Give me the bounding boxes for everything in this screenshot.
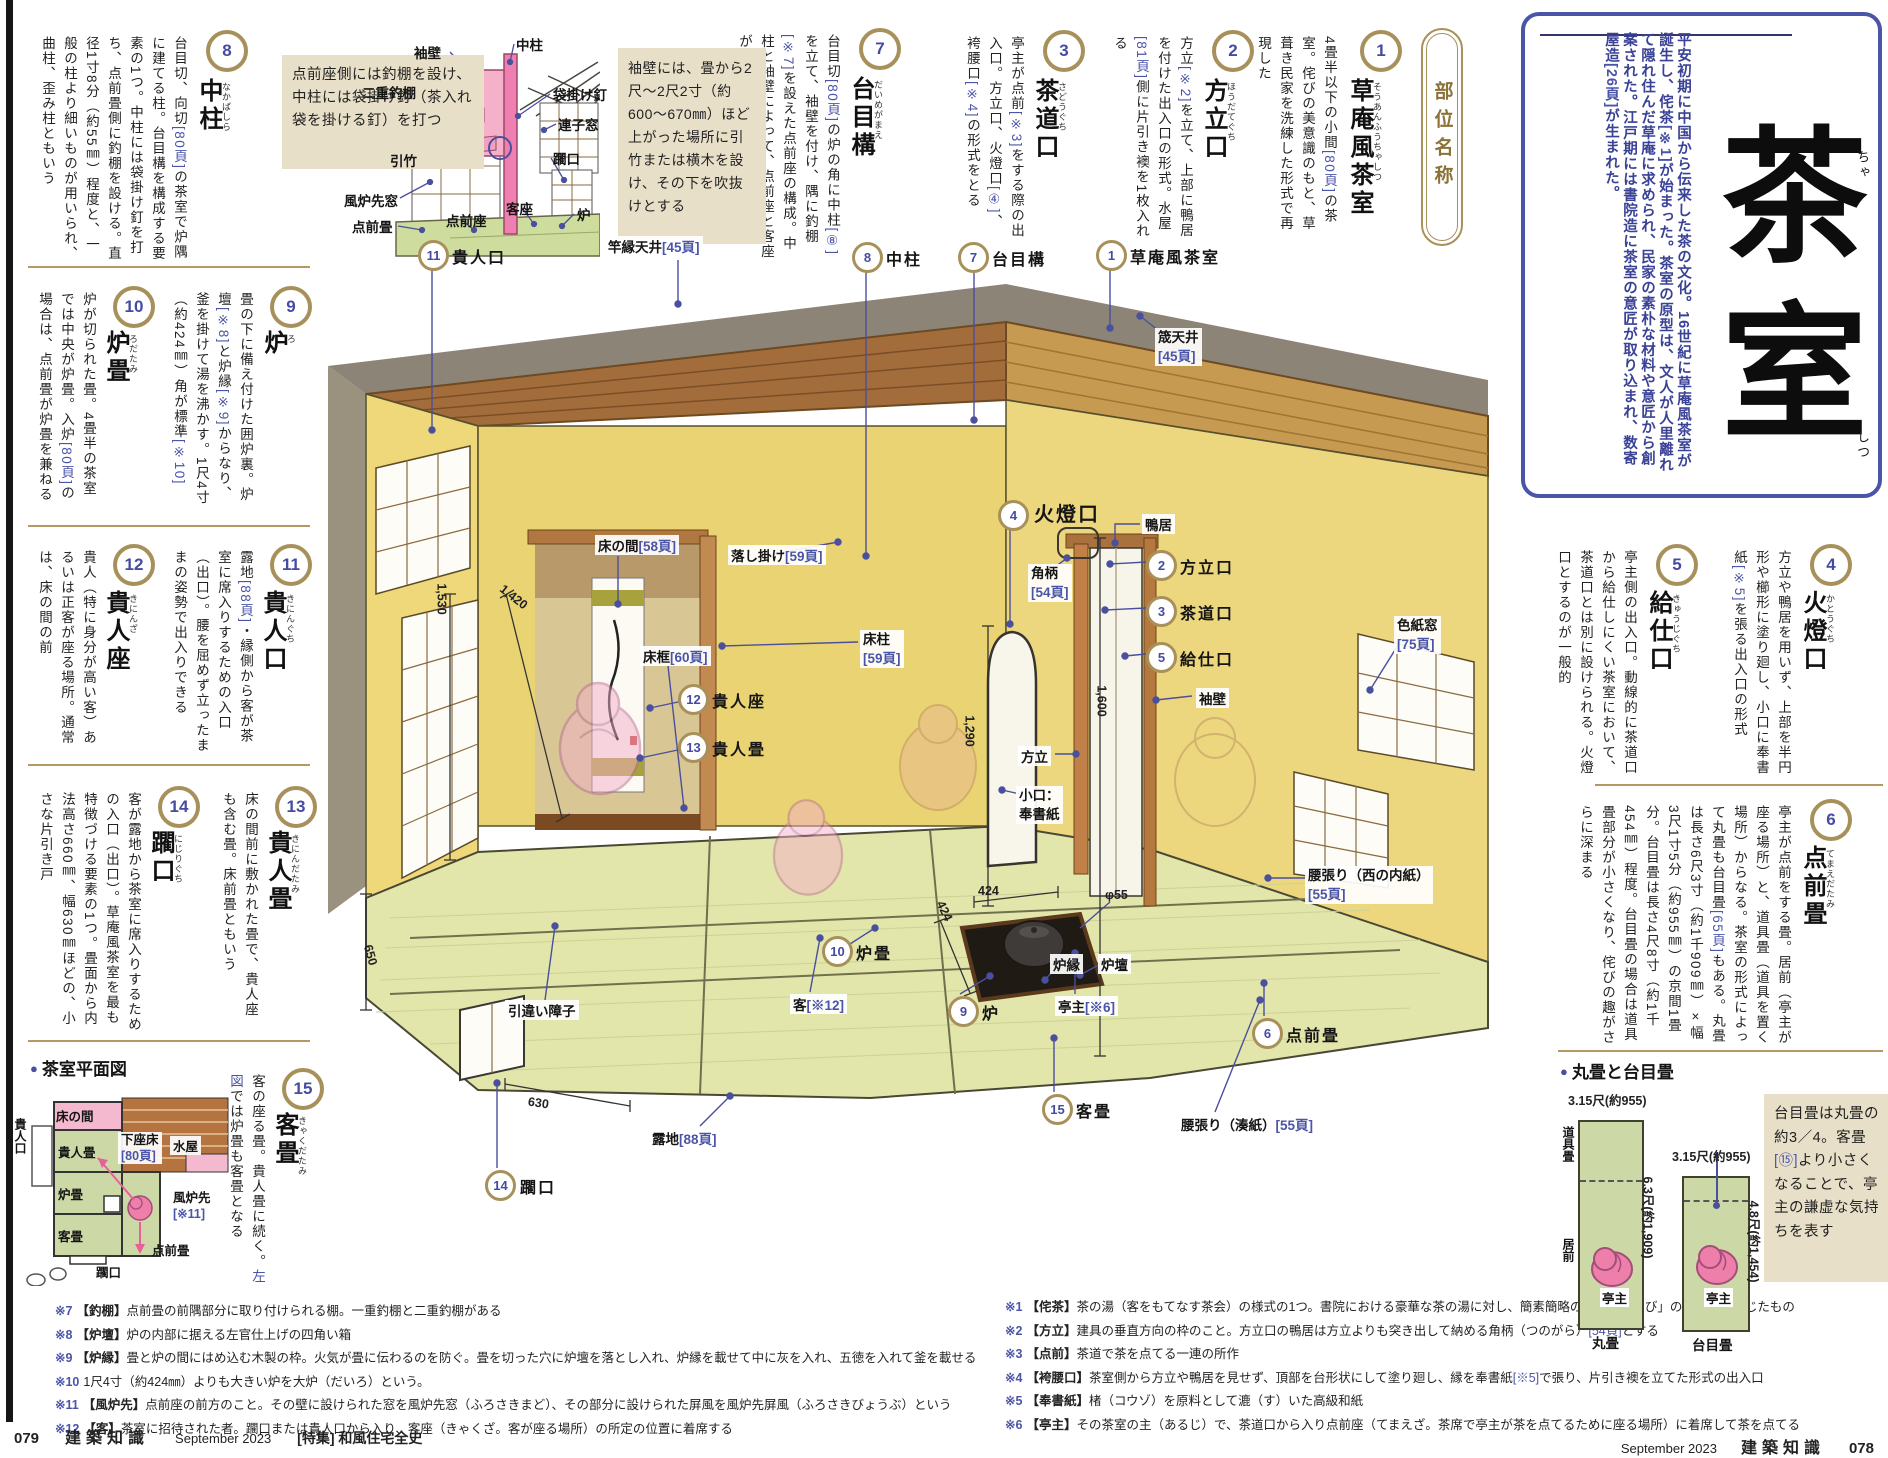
- item-6-kana: てまえだたみ: [1824, 849, 1837, 909]
- mini-label-furosaki-mado: 風炉先窓: [344, 190, 398, 210]
- diagram-label-koshibari-nishi: 腰張り（西の内紙）[55頁]: [1305, 866, 1433, 904]
- item-3-number: 3: [1043, 30, 1085, 72]
- diagram-label-koshibari-minato: 腰張り（湊紙）[55頁]: [1178, 1114, 1316, 1134]
- mini-label-ro: 炉: [577, 204, 591, 224]
- item-9-number: 9: [270, 286, 312, 328]
- diagram-label-kyaku: 客[※12]: [790, 994, 847, 1014]
- diagram-label-koguchi: 小口：奉書紙: [1016, 786, 1063, 824]
- item-7-kana: だいめがまえ: [872, 80, 885, 140]
- issue-date-right: September 2023: [1621, 1441, 1717, 1456]
- tatami-dim-w2: 3.15尺(約955): [1672, 1146, 1751, 1165]
- page-title: 茶室: [1708, 120, 1854, 472]
- divider: [1558, 1050, 1883, 1052]
- diagram-label-sodekabe: 袖壁: [1196, 688, 1229, 708]
- diagram-label-nijiriguchi: 躙口: [520, 1174, 556, 1198]
- mini-label-fukurokake-kugi: 袋掛け釘: [553, 84, 607, 104]
- diagram-label-teishu: 亭主[※6]: [1055, 996, 1118, 1016]
- diagram-circle-13: 13: [678, 732, 709, 763]
- item-6-number: 6: [1810, 799, 1852, 841]
- tatami-title: ●丸畳と台目畳: [1560, 1058, 1674, 1083]
- diagram-circle-2: 2: [1146, 550, 1177, 581]
- item-15-kana: きゃくだたみ: [296, 1116, 309, 1176]
- diagram-circle-15: 15: [1042, 1094, 1073, 1125]
- diagram-label-saobuchi-tenjo: 竿縁天井[45頁]: [605, 236, 703, 256]
- item-6-body: 亭主が点前をする畳。居前（亭主が座る場所）と、道具畳（道具を置く場所）からなる。…: [1574, 805, 1794, 1045]
- diagram-label-tsunogara: 角柄[54頁]: [1028, 564, 1072, 602]
- host-figure: [128, 1196, 152, 1220]
- diagram-label-otoshigake: 落し掛け[59頁]: [728, 545, 826, 565]
- item-4-number: 4: [1810, 544, 1852, 586]
- tatami-dim-h2: 4.8尺(約1,454): [1745, 1201, 1764, 1283]
- page-title-kana-2: しつ: [1853, 430, 1872, 460]
- item-8-kana: なかばしら: [220, 82, 233, 132]
- diagram-circle-3: 3: [1146, 596, 1177, 627]
- plan-label-rodatami: 炉畳: [58, 1184, 83, 1203]
- item-7-number: 7: [859, 28, 901, 70]
- item-9-kana: ろ: [285, 334, 298, 344]
- divider: [1595, 784, 1883, 786]
- divider: [28, 1040, 310, 1042]
- item-13-kana: きにんだたみ: [289, 834, 302, 894]
- item-3-body: 亭主が点前[※3]をする際の出入口。方立口、火燈口[④]、袴腰口[※4]の形式を…: [961, 36, 1027, 240]
- plan-label-nijiriguchi: 躙口: [96, 1262, 121, 1281]
- badge-outline: 部位名称: [1421, 28, 1463, 246]
- feature-title: [特集] 和風住宅全史: [297, 1428, 422, 1448]
- magazine-name-right: 建築知識: [1741, 1434, 1825, 1458]
- diagram-label-soanfu: 草庵風茶室: [1130, 244, 1220, 268]
- diagram-circle-14: 14: [485, 1170, 516, 1201]
- mini-label-nakabashira: 中柱: [516, 34, 543, 54]
- footer-left: 079 建築知識 September 2023 [特集] 和風住宅全史: [14, 1424, 422, 1448]
- diagram-label-kininza: 貴人座: [712, 688, 766, 712]
- plan-label-temaedatami: 点前畳: [152, 1240, 190, 1259]
- item-12-number: 12: [113, 544, 155, 586]
- diagram-circle-8: 8: [852, 242, 883, 273]
- diagram-circle-9: 9: [948, 996, 979, 1027]
- dim-424a: 424: [978, 884, 999, 898]
- tatami-dim-w1: 3.15尺(約955): [1568, 1090, 1647, 1109]
- floor-plan-title: ●茶室平面図: [30, 1055, 127, 1080]
- diagram-label-kinindatami: 貴人畳: [712, 736, 766, 760]
- page-number-left: 079: [14, 1430, 39, 1447]
- diagram-label-hodate: 方立: [1018, 746, 1051, 766]
- dim-1290: 1,290: [963, 715, 977, 746]
- footnotes-left: ※7【釣棚】点前畳の前隅部分に取り付けられる棚。一重釣棚と二重釣棚がある ※8【…: [55, 1300, 1015, 1441]
- plan-label-kinindatami: 貴人畳: [58, 1142, 96, 1161]
- diagram-label-nakabashira: 中柱: [886, 246, 922, 270]
- item-4-body: 方立や鴨居を用いず、上部を半円形や櫛形に塗り廻し、小口に奉書紙[※5]を張る出入…: [1728, 550, 1794, 776]
- item-1-body: 4畳半以下の小間[80頁]の茶室。侘びの美意識のもと、草葺き民家を洗練した形式で…: [1252, 36, 1340, 240]
- mini-label-sodekabe: 袖壁: [414, 42, 441, 62]
- diagram-label-kyakudatami: 客畳: [1076, 1098, 1112, 1122]
- dim-1530: 1,530: [435, 583, 449, 614]
- item-1-number: 1: [1360, 30, 1402, 72]
- diagram-label-daimegamae: 台目構: [992, 246, 1046, 270]
- item-12-kana: きにんざ: [127, 594, 140, 634]
- plan-label-furosaki: 風炉先[※11]: [170, 1190, 214, 1222]
- item-5-body: 亭主側の出入口。動線的に茶道口から給仕しにくい茶室において、茶道口とは別に設けら…: [1552, 550, 1640, 776]
- note-sodekabe: 袖壁には、畳から2尺〜2尺2寸（約600〜670㎜）ほど上がった場所に引竹または…: [618, 48, 766, 244]
- diagram-label-hikichigai: 引違い障子: [505, 1000, 579, 1020]
- divider: [28, 525, 310, 527]
- item-10-kana: ろだたみ: [127, 334, 140, 374]
- item-3-kana: さどうぐち: [1056, 82, 1069, 132]
- main-diagram: [310, 238, 1500, 1198]
- diagram-label-katoguchi: 火燈口: [1034, 498, 1100, 527]
- item-14-kana: にじりぐち: [172, 834, 185, 884]
- diagram-label-rodatami: 炉畳: [856, 940, 892, 964]
- tatami-label-teishu2: 亭主: [1704, 1288, 1733, 1307]
- diagram-label-kamoi: 鴨居: [1142, 514, 1175, 534]
- divider: [28, 266, 310, 268]
- page-title-kana-1: ちゃ: [1853, 150, 1872, 180]
- item-8-body: 台目切、向切[80頁]の茶室で炉隅に建てる柱。台目構を構成する要素の1つ。中柱に…: [36, 36, 190, 264]
- footnotes-right: ※1【侘茶】茶の湯（客をもてなす茶会）の様式の1つ。書院における豪華な茶の湯に対…: [1005, 1296, 1885, 1437]
- diagram-circle-10: 10: [822, 936, 853, 967]
- note-daime: 台目畳は丸畳の約3／4。客畳[⑮]より小さくなることで、亭主の謙虚な気持ちを表す: [1764, 1094, 1888, 1282]
- diagram-label-sadoguchi: 茶道口: [1180, 600, 1234, 624]
- diagram-label-osa-tenjo: 筬天井[45頁]: [1155, 328, 1202, 366]
- tatami-label-dougu: 道具畳: [1560, 1126, 1577, 1162]
- mini-label-kyakuza: 客座: [506, 198, 533, 218]
- diagram-circle-1: 1: [1096, 240, 1127, 271]
- item-2-kana: ほうだてぐち: [1225, 82, 1238, 142]
- item-2-number: 2: [1212, 30, 1254, 72]
- tatami-label-teishu1: 亭主: [1600, 1288, 1629, 1307]
- dim-1600: 1,600: [1095, 685, 1109, 716]
- page-number-right: 078: [1849, 1440, 1874, 1457]
- item-5-kana: きゅうじぐち: [1670, 594, 1683, 654]
- diagram-label-kyujiguchi: 給仕口: [1180, 646, 1234, 670]
- magazine-name-left: 建築知識: [65, 1424, 149, 1448]
- item-4-kana: かとうぐち: [1824, 594, 1837, 644]
- item-15-number: 15: [282, 1068, 324, 1110]
- diagram-label-tokobashira: 床柱[59頁]: [860, 630, 904, 668]
- diagram-label-roji: 露地[88頁]: [652, 1128, 717, 1148]
- item-5-number: 5: [1656, 544, 1698, 586]
- diagram-circle-7: 7: [958, 242, 989, 273]
- tatami-caption-maru: 丸畳: [1592, 1332, 1619, 1352]
- item-11-kana: きにんぐち: [284, 594, 297, 644]
- divider: [28, 764, 310, 766]
- item-14-body: 客が露地から茶室に席入りするための入口（出口）。草庵風茶室を最も特徴づける要素の…: [34, 792, 144, 1032]
- mini-label-nijyu-tsuridana: 二重釣棚: [362, 82, 416, 102]
- tatami-caption-daime: 台目畳: [1692, 1334, 1733, 1354]
- intro-text: 平安初期に中国から伝来した茶の文化。16世紀に草庵風茶室が誕生し、侘茶[※1]が…: [1602, 32, 1692, 478]
- item-11-number: 11: [270, 544, 312, 586]
- item-13-number: 13: [275, 786, 317, 828]
- diagram-label-hodateguchi: 方立口: [1180, 554, 1234, 578]
- diagram-label-tokonoma: 床の間[58頁]: [595, 535, 679, 555]
- item-2-body: 方立[※2]を立て、上部に鴨居を付けた出入口の形式。水屋[81頁]側に片引き襖を…: [1108, 36, 1196, 240]
- badge-label: 部位名称: [1429, 81, 1456, 193]
- diagram-label-kinin-guchi: 貴人口: [452, 244, 506, 268]
- plan-label-tokonoma: 床の間: [56, 1106, 94, 1125]
- item-11-body: 露地[88頁]・縁側から客が茶室に席入りするための入口（出口）。腰を屈めず立った…: [168, 550, 256, 755]
- plan-label-kinin-guchi: 貴人口: [12, 1118, 29, 1154]
- mini-label-hikitake: 引竹: [390, 150, 417, 170]
- dim-phi55: φ55: [1105, 888, 1128, 902]
- item-10-body: 炉が切られた畳。4畳半の茶室では中央が炉畳。入炉[80頁]の場合は、点前畳が炉畳…: [33, 292, 99, 507]
- plan-label-mizuya: 水屋: [170, 1136, 201, 1155]
- mini-label-temaedatami: 点前畳: [352, 216, 393, 236]
- diagram-circle-6: 6: [1252, 1018, 1283, 1049]
- note-tsuridana: 点前座側には釣棚を設け、中柱には袋掛け釘（茶入れ袋を掛ける釘）を打つ: [282, 55, 484, 169]
- issue-date-left: September 2023: [175, 1431, 271, 1446]
- plan-label-kyakudatami: 客畳: [58, 1226, 83, 1245]
- item-15-body: 客の座る畳。貴人畳に続く。左図では炉畳も客畳となる: [224, 1074, 268, 1294]
- diagram-circle-11: 11: [418, 240, 449, 271]
- diagram-label-ro: 炉: [982, 1000, 1000, 1024]
- daime-leader-dot: [1713, 1202, 1720, 1209]
- diagram-label-robuchi: 炉縁: [1050, 954, 1083, 974]
- item-1-kana: そうあんふうちゃしつ: [1371, 82, 1384, 182]
- item-14-number: 14: [158, 786, 200, 828]
- magazine-spread: 茶室 ちゃ しつ 平安初期に中国から伝来した茶の文化。16世紀に草庵風茶室が誕生…: [0, 0, 1888, 1458]
- page-edge: [6, 0, 13, 1422]
- diagram-label-temaedatami: 点前畳: [1286, 1022, 1340, 1046]
- tatami-label-imae: 居前: [1560, 1238, 1577, 1262]
- plan-label-gezadoko: 下座床[80頁]: [118, 1132, 162, 1164]
- diagram-label-shikishimado: 色紙窓[75頁]: [1394, 616, 1441, 654]
- item-12-body: 貴人（特に身分が高い客）あるいは正客が座る場所。通常は、床の間の前: [33, 550, 99, 755]
- diagram-circle-5: 5: [1146, 642, 1177, 673]
- dim-630: 630: [527, 1095, 550, 1112]
- mini-label-nijiriguchi: 躙口: [553, 148, 580, 168]
- item-9-body: 畳の下に備え付けた囲炉裏。炉壇[※8]と炉縁[※9]からなり、釜を掛けて湯を沸か…: [168, 292, 256, 507]
- item-13-body: 床の間前に敷かれた畳で、貴人座も含む畳。床前畳ともいう: [217, 792, 261, 1017]
- diagram-circle-4: 4: [998, 500, 1029, 531]
- mini-label-temaeza: 点前座: [446, 210, 487, 230]
- diagram-circle-12: 12: [678, 684, 709, 715]
- tatami-dim-h1: 6.3尺(約1,909): [1639, 1177, 1658, 1259]
- footer-right: September 2023 建築知識 078: [1621, 1434, 1874, 1458]
- item-10-number: 10: [113, 286, 155, 328]
- diagram-label-tokogamachi: 床框[60頁]: [640, 646, 711, 666]
- mini-label-renjimado: 連子窓: [558, 114, 599, 134]
- item-8-number: 8: [206, 30, 248, 72]
- diagram-label-rodan: 炉壇: [1098, 954, 1131, 974]
